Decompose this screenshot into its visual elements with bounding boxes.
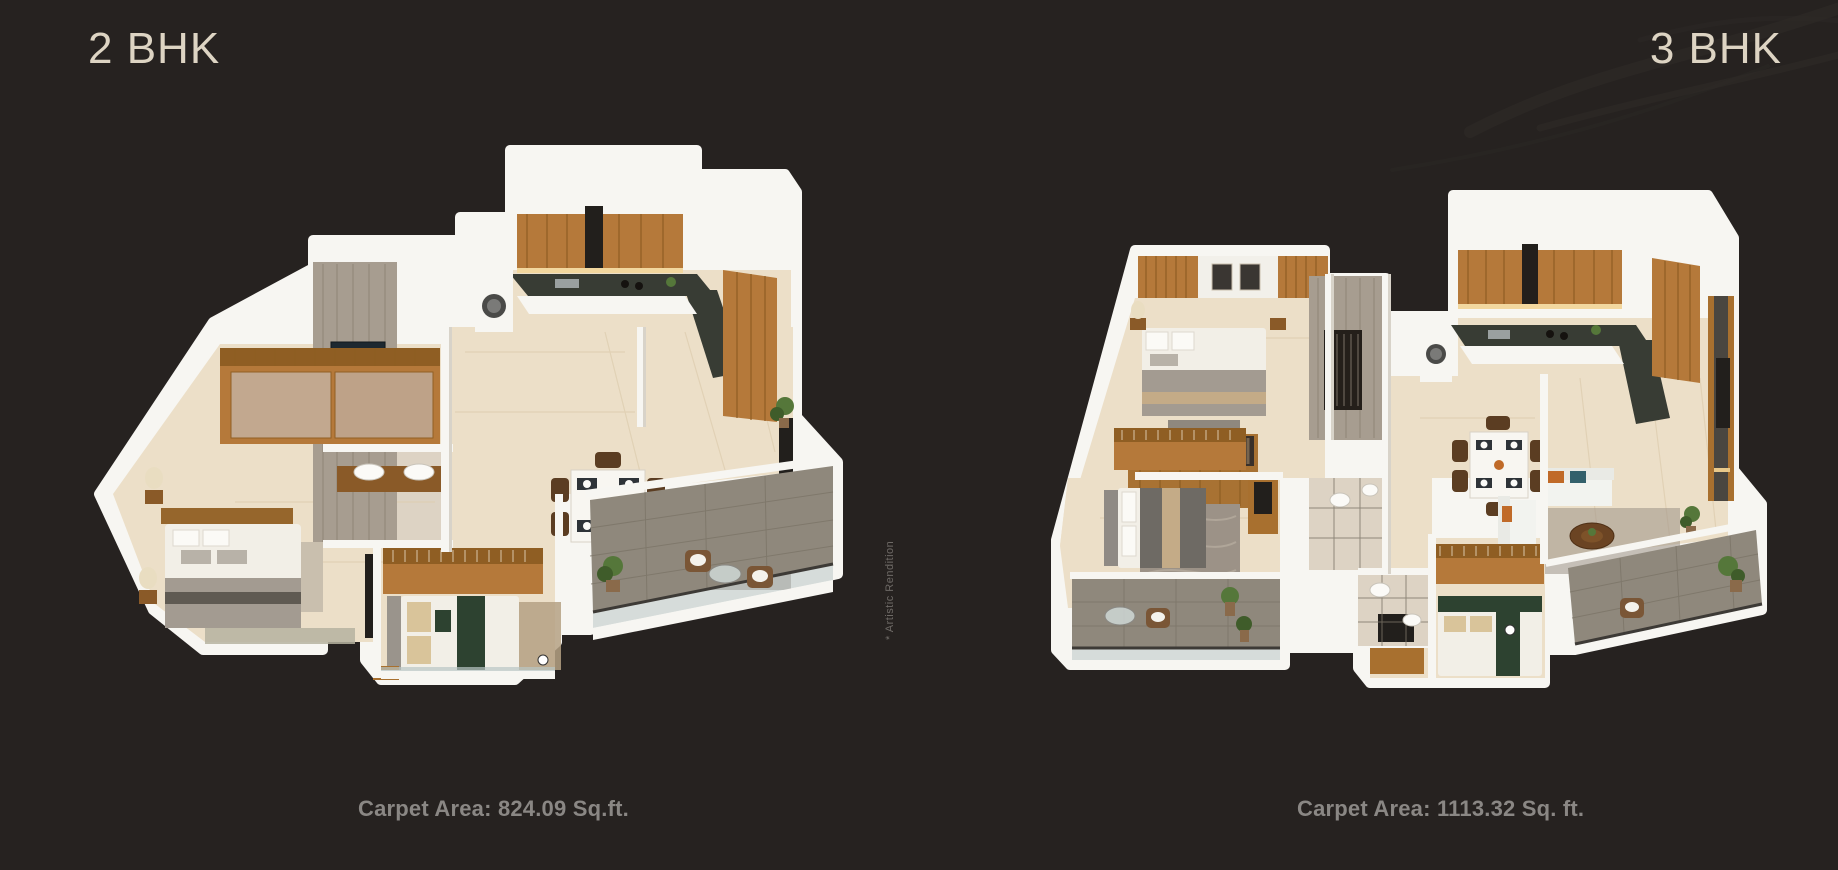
counter-plant — [1591, 325, 1601, 335]
toilet — [1370, 583, 1390, 597]
table-lamp — [139, 567, 157, 589]
window-glass — [381, 667, 555, 671]
dining-chair — [1452, 440, 1468, 462]
kitchen-sink — [555, 279, 579, 288]
centerpiece — [1494, 460, 1504, 470]
bed-bench — [301, 542, 323, 612]
toilet — [1330, 493, 1350, 507]
under-cabinet-light — [517, 268, 683, 273]
dining-chair — [1452, 470, 1468, 492]
bed-runner — [1496, 596, 1520, 676]
entry-door — [1652, 258, 1700, 383]
bed-runner — [457, 596, 485, 672]
dining-chair — [595, 452, 621, 468]
glass-railing — [1072, 648, 1280, 660]
entry-door — [723, 270, 777, 422]
table-lamp — [145, 467, 163, 489]
counter-plant — [666, 277, 676, 287]
carpet-area-3bhk: Carpet Area: 1113.32 Sq. ft. — [1297, 796, 1584, 822]
bed-runner — [1162, 488, 1180, 568]
dresser — [1248, 476, 1278, 534]
football — [538, 655, 548, 665]
brochure-canvas: 2 BHK 3 BHK — [0, 0, 1838, 870]
bed-headboard — [161, 508, 293, 524]
washbasin — [1403, 614, 1421, 626]
kitchen-upper-cabinet — [1538, 250, 1622, 304]
picture-frame — [1212, 264, 1232, 290]
wardrobe-sliding-door — [335, 372, 433, 438]
floorplan-3bhk-render — [1040, 178, 1780, 688]
bed-headboard — [387, 596, 401, 670]
artistic-rendition-note: * Artistic Rendition — [884, 548, 896, 640]
washbasin — [404, 464, 434, 480]
table-lamp — [1131, 301, 1145, 319]
kitchen-base-cabinet — [517, 296, 697, 314]
balcony-chair — [685, 550, 711, 572]
balcony-chair — [1620, 598, 1644, 618]
master-balcony — [1072, 578, 1280, 660]
football — [1505, 625, 1515, 635]
kitchen-upper-cabinet — [603, 214, 683, 270]
tv-feature-wall — [1708, 296, 1734, 501]
nightstand — [1270, 318, 1286, 330]
balcony-chair — [747, 566, 773, 588]
bed-headboard — [1104, 490, 1118, 566]
floorplan-3bhk — [1040, 178, 1780, 688]
nightstand — [145, 490, 163, 504]
balcony-chair — [1146, 608, 1170, 628]
kitchen-counter — [510, 274, 715, 296]
carpet-area-2bhk: Carpet Area: 824.09 Sq.ft. — [358, 796, 629, 822]
bedroom-rug — [205, 628, 355, 644]
kitchen-sink — [1488, 330, 1510, 339]
dining-chair — [1486, 416, 1510, 430]
washbasin — [354, 464, 384, 480]
chimney-hood — [585, 206, 603, 270]
floorplan-2bhk — [85, 122, 845, 692]
window-sill — [381, 670, 555, 679]
stone-feature-wall — [1309, 276, 1386, 440]
picture-frame — [1240, 264, 1260, 290]
slat-feature-wall — [1138, 256, 1198, 298]
utility — [1420, 326, 1452, 382]
floorplan-2bhk-render — [85, 122, 845, 692]
balcony-table — [709, 565, 741, 583]
plan-title-2bhk: 2 BHK — [88, 24, 220, 74]
chimney-hood — [1522, 244, 1538, 306]
washbasin — [1362, 484, 1378, 496]
nightstand — [139, 590, 157, 604]
wardrobe-sliding-door — [231, 372, 331, 438]
kitchen-base-cabinet — [1460, 346, 1624, 364]
tv-screen — [1716, 358, 1730, 428]
balcony-table — [1105, 607, 1135, 625]
nightstand — [1130, 318, 1146, 330]
bedroom-2 — [365, 548, 561, 680]
under-cabinet-light — [1458, 304, 1622, 309]
plan-title-3bhk: 3 BHK — [1650, 24, 1782, 74]
